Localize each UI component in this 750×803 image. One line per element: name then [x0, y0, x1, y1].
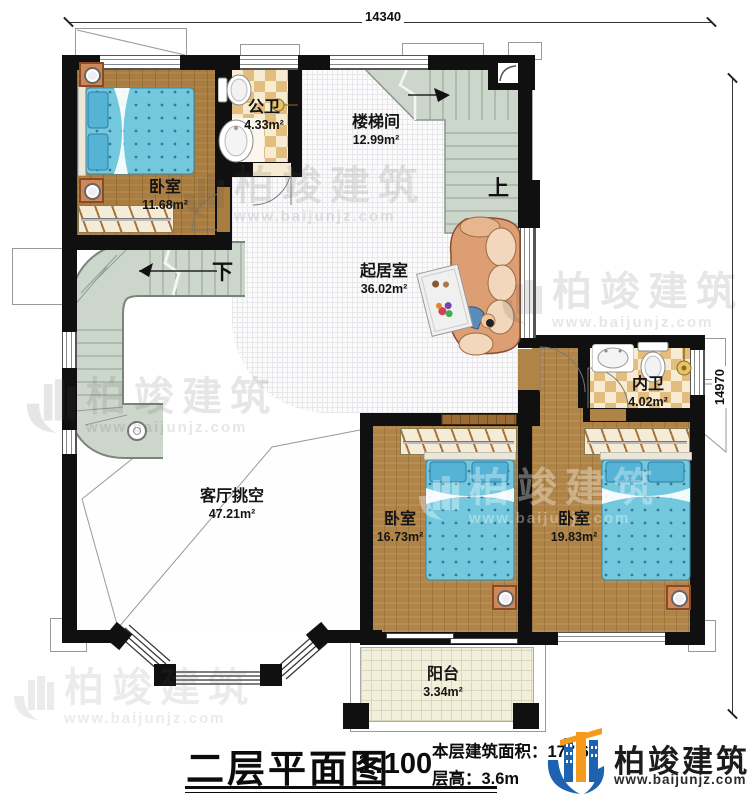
- room-area: 3.34m²: [423, 685, 463, 701]
- balcony-sliding-door-leaf2: [450, 638, 518, 644]
- balcony-column-left: [343, 703, 369, 729]
- sliding-door-bedroom-b1: [441, 414, 517, 425]
- balcony-sliding-door-leaf1: [386, 633, 454, 639]
- label-void: 客厅挑空 47.21m²: [200, 487, 264, 523]
- wardrobe-bedroom-b1: [400, 428, 517, 455]
- room-name: 公卫: [244, 98, 284, 118]
- label-stairwell: 楼梯间 12.99m²: [352, 113, 400, 149]
- door-gap-bedroomtl: [217, 187, 230, 232]
- floor-area-label: 本层建筑面积：: [432, 743, 548, 761]
- nightstand-tl-1: [79, 62, 104, 87]
- stair-down-label: 下: [212, 256, 233, 286]
- label-living: 起居室 36.02m²: [360, 262, 408, 298]
- stair-up-label: 上: [488, 172, 509, 202]
- room-name: 内卫: [628, 375, 668, 395]
- floor-height-label: 层高：: [432, 770, 482, 788]
- room-area: 47.21m²: [200, 507, 264, 523]
- label-bedroom-b1: 卧室 16.73m²: [377, 510, 424, 546]
- room-name: 卧室: [142, 178, 188, 198]
- room-name: 楼梯间: [352, 113, 400, 133]
- label-inner-bath: 内卫 4.02m²: [628, 375, 668, 411]
- nightstand-b2: [666, 585, 691, 610]
- room-area: 12.99m²: [352, 133, 400, 149]
- floor-plan-canvas: 柏竣建筑 www.baijunjz.com 柏竣建筑 www.baijunjz.…: [0, 0, 750, 803]
- label-bedroom-b2: 卧室 19.83m²: [551, 510, 598, 546]
- dimension-right-value: 14970: [712, 366, 727, 408]
- title-underline-thin: [185, 792, 497, 793]
- floor-height-line: 层高：3.6m: [432, 765, 519, 789]
- room-area: 11.68m²: [142, 198, 188, 214]
- room-name: 卧室: [551, 510, 598, 530]
- floor-height-value: 3.6m: [482, 770, 520, 788]
- room-area: 19.83m²: [551, 530, 598, 546]
- plan-scale: 1:100: [358, 748, 432, 781]
- nightstand-b1: [492, 585, 517, 610]
- room-name: 客厅挑空: [200, 487, 264, 507]
- tea-table: [416, 262, 476, 340]
- door-gap-publicbath: [253, 163, 291, 176]
- sink-inner-bath: [592, 344, 634, 374]
- door-gap-innerbath: [590, 409, 626, 421]
- room-area: 36.02m²: [360, 282, 408, 298]
- room-name: 阳台: [423, 665, 463, 685]
- brand-logo-icon: [540, 726, 610, 798]
- label-balcony: 阳台 3.34m²: [423, 665, 463, 701]
- dimension-line-right: [732, 78, 733, 715]
- bed-bedroom-b2: [600, 452, 692, 582]
- brand-url: www.baijunjz.com: [614, 772, 747, 787]
- shower-inner-bath: [672, 348, 696, 380]
- room-area: 4.02m²: [628, 395, 668, 411]
- room-area: 16.73m²: [377, 530, 424, 546]
- bed-bedroom-b1: [424, 452, 516, 582]
- bed-bedroom-tl: [78, 86, 196, 176]
- balcony-column-right: [513, 703, 539, 729]
- wardrobe-bedroom-b2: [584, 428, 690, 455]
- label-public-bath: 公卫 4.33m²: [244, 98, 284, 134]
- room-name: 起居室: [360, 262, 408, 282]
- dimension-top-value: 14340: [362, 9, 404, 24]
- label-bedroom-tl: 卧室 11.68m²: [142, 178, 188, 214]
- room-name: 卧室: [377, 510, 424, 530]
- room-area: 4.33m²: [244, 118, 284, 134]
- nightstand-tl-2: [79, 178, 104, 203]
